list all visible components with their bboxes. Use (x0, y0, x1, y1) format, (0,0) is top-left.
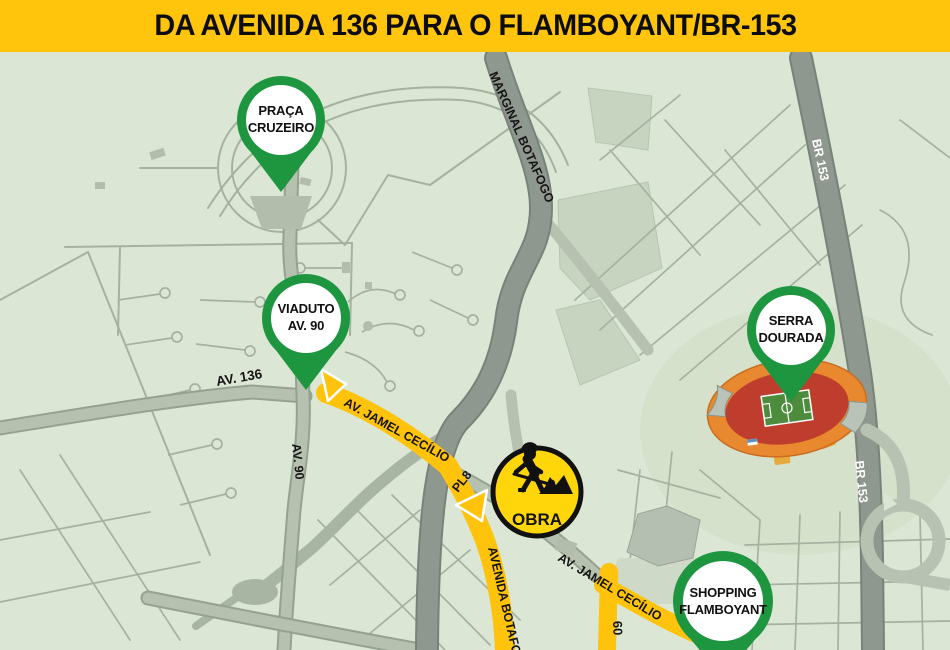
pin-shopping-flamboyant: SHOPPING FLAMBOYANT (673, 551, 773, 650)
map-canvas: MARGINAL BOTAFOGO BR 153 BR 153 AV. 136 … (0, 52, 950, 650)
pin-flamboyant-line2: FLAMBOYANT (679, 602, 767, 617)
title-bar: DA AVENIDA 136 PARA O FLAMBOYANT/BR-153 (0, 0, 950, 52)
construction-label: OBRA (512, 510, 562, 529)
pin-viaduto-line1: VIADUTO (278, 301, 335, 316)
label-rua-60: 60 (610, 621, 625, 636)
pin-praca-line2: CRUZEIRO (248, 120, 314, 135)
pin-praca-line1: PRAÇA (258, 103, 304, 118)
map-title: DA AVENIDA 136 PARA O FLAMBOYANT/BR-153 (154, 9, 796, 43)
pin-serra-line2: DOURADA (758, 330, 824, 345)
pin-serra-line1: SERRA (769, 313, 814, 328)
traffic-detour-map: DA AVENIDA 136 PARA O FLAMBOYANT/BR-153 (0, 0, 950, 650)
pin-flamboyant-line1: SHOPPING (689, 585, 756, 600)
pin-viaduto-line2: AV. 90 (288, 318, 324, 333)
